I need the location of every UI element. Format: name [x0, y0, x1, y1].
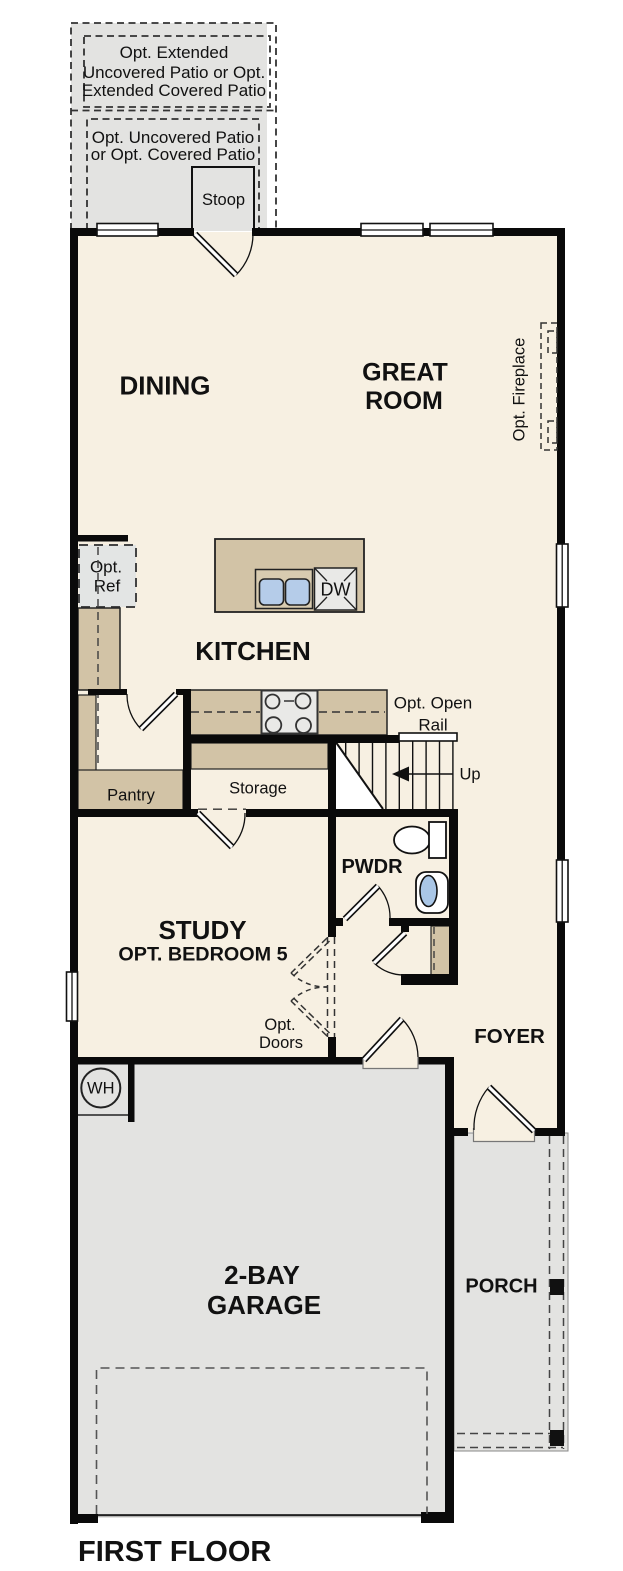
svg-text:FOYER: FOYER [474, 1025, 545, 1048]
svg-text:STUDY: STUDY [158, 915, 246, 945]
svg-text:DW: DW [321, 580, 351, 600]
svg-text:DINING: DINING [120, 371, 211, 401]
svg-text:Uncovered Patio or Opt.: Uncovered Patio or Opt. [83, 63, 265, 82]
svg-text:OPT. BEDROOM 5: OPT. BEDROOM 5 [118, 944, 287, 966]
svg-text:Extended Covered Patio: Extended Covered Patio [82, 81, 266, 100]
svg-text:PWDR: PWDR [341, 856, 403, 878]
svg-text:Doors: Doors [259, 1034, 303, 1052]
svg-text:GARAGE: GARAGE [207, 1290, 321, 1320]
svg-text:ROOM: ROOM [365, 387, 443, 415]
svg-text:Storage: Storage [229, 780, 287, 798]
svg-text:Opt.: Opt. [264, 1016, 295, 1034]
svg-text:2-BAY: 2-BAY [224, 1260, 300, 1290]
svg-text:GREAT: GREAT [362, 359, 448, 387]
svg-text:Pantry: Pantry [107, 787, 155, 805]
svg-text:Up: Up [459, 766, 480, 784]
svg-text:KITCHEN: KITCHEN [195, 636, 311, 666]
svg-text:PORCH: PORCH [465, 1276, 537, 1298]
svg-text:Opt. Fireplace: Opt. Fireplace [511, 338, 529, 442]
svg-text:WH: WH [87, 1080, 115, 1098]
svg-text:Rail: Rail [418, 716, 447, 735]
svg-text:Opt. Extended: Opt. Extended [120, 43, 229, 62]
svg-text:Opt.: Opt. [90, 558, 122, 577]
svg-text:Opt. Open: Opt. Open [394, 694, 472, 713]
svg-text:Stoop: Stoop [202, 191, 245, 209]
svg-text:or Opt. Covered Patio: or Opt. Covered Patio [91, 145, 255, 164]
svg-text:FIRST FLOOR: FIRST FLOOR [78, 1536, 271, 1568]
